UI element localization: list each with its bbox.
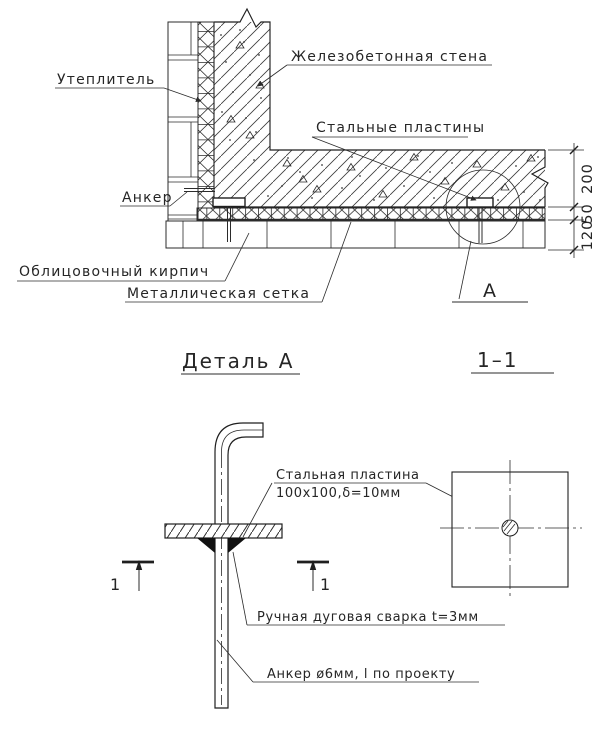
label-steel-plate-line1: Стальная пластина bbox=[276, 468, 420, 483]
detail-title: Деталь А bbox=[182, 349, 294, 373]
label-anchor: Анкер bbox=[122, 190, 173, 206]
label-weld: Ручная дуговая сварка t=3мм bbox=[257, 610, 479, 625]
cut-number-right: 1 bbox=[320, 575, 330, 594]
insulation-vertical-layer bbox=[198, 22, 214, 208]
detail-letter: А bbox=[483, 280, 497, 302]
cut-number-left: 1 bbox=[110, 575, 120, 594]
label-steel-plate-line2: 100х100,δ=10мм bbox=[276, 486, 401, 501]
plate-plan-view bbox=[440, 460, 582, 599]
facing-brick-leader bbox=[225, 233, 249, 281]
detail-a-drawing: Деталь А 1–1 1 1 Стальная пл bbox=[110, 348, 582, 708]
label-facing-brick: Облицовочный кирпич bbox=[19, 264, 209, 280]
drawing-sheet: А Утеплитель Железобетонная стена Стальн… bbox=[0, 0, 605, 735]
weld-leader bbox=[233, 552, 247, 625]
detail-leader bbox=[459, 241, 471, 299]
section-view-drawing: А Утеплитель Железобетонная стена Стальн… bbox=[17, 9, 596, 302]
weld-fillet-left bbox=[197, 538, 215, 553]
label-metal-mesh: Металлическая сетка bbox=[127, 286, 310, 302]
label-anchor-detail: Анкер ø6мм, l по проекту bbox=[267, 667, 455, 682]
section-1-1-title: 1–1 bbox=[477, 348, 518, 372]
section-cut-mark-right: 1 bbox=[297, 560, 330, 594]
label-steel-plates: Стальные пластины bbox=[316, 120, 485, 136]
dim-concrete: 200 bbox=[580, 163, 596, 194]
dim-brick: 120 bbox=[580, 220, 596, 251]
insulation-leader bbox=[164, 88, 201, 101]
construction-detail-drawing: А Утеплитель Железобетонная стена Стальн… bbox=[0, 0, 605, 735]
steel-plate-side-view bbox=[165, 524, 282, 538]
label-concrete-wall: Железобетонная стена bbox=[291, 49, 488, 65]
insulation-horizontal-layer bbox=[197, 208, 545, 220]
anchor-cross-section bbox=[502, 520, 518, 536]
dimension-chain: 200 50 120 bbox=[548, 143, 596, 258]
metal-mesh-leader bbox=[322, 222, 351, 302]
section-cut-mark-left: 1 bbox=[110, 560, 154, 594]
weld-fillet-right bbox=[228, 538, 246, 553]
label-insulation: Утеплитель bbox=[57, 72, 155, 88]
